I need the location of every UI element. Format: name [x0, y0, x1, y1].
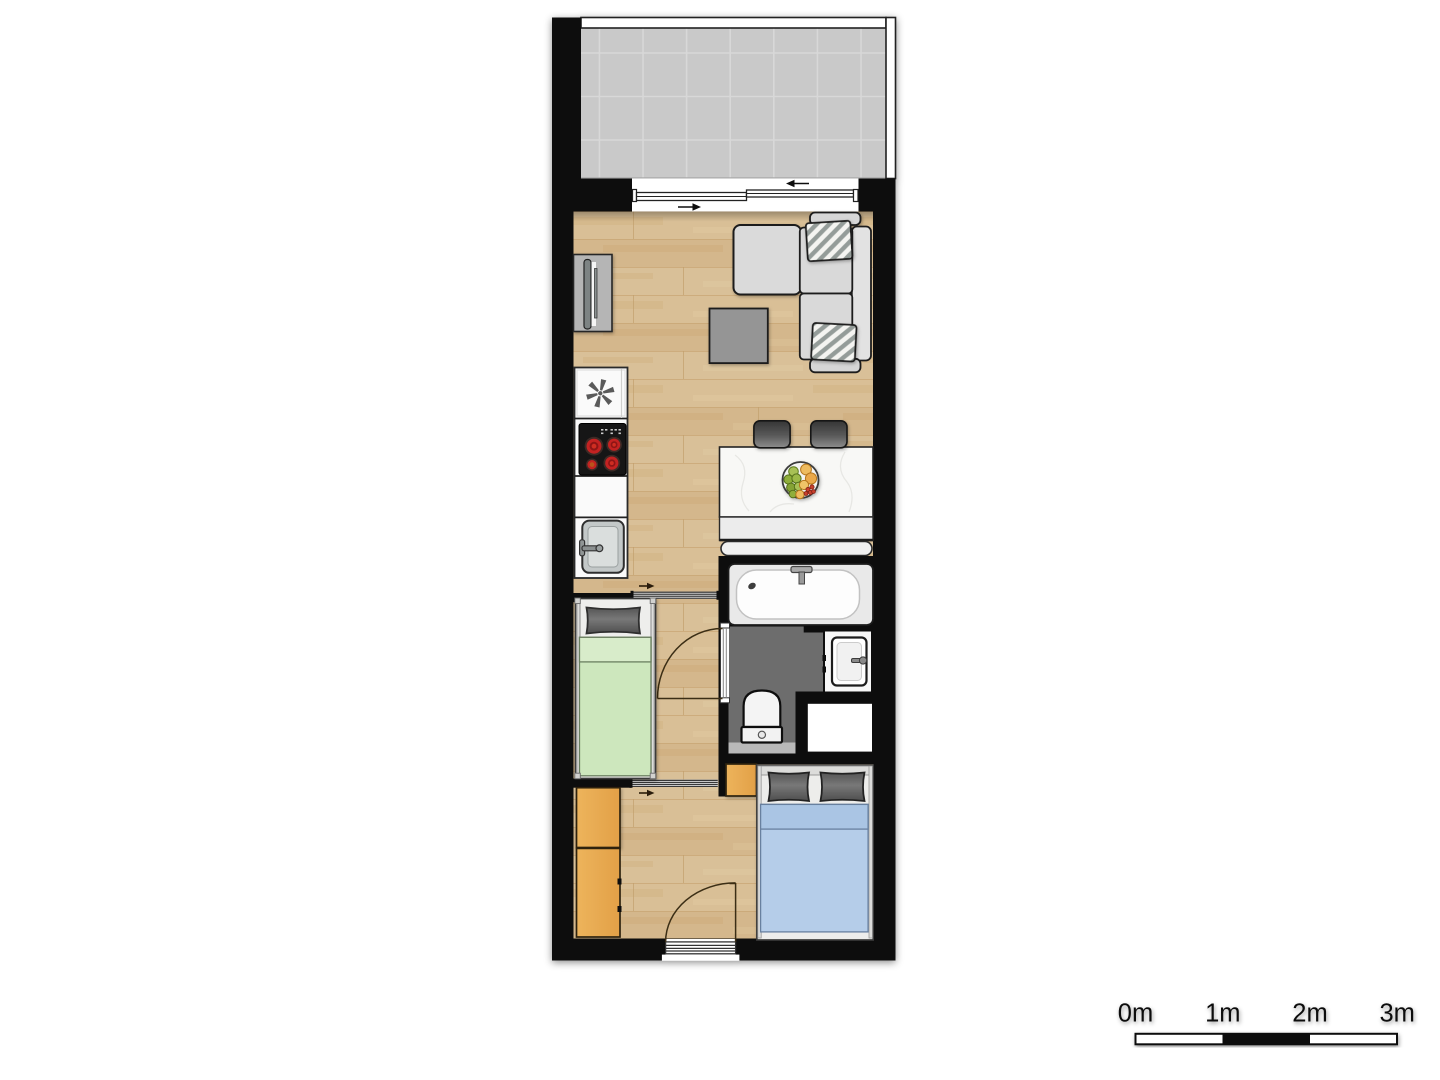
svg-text:1m: 1m [1205, 1000, 1240, 1028]
svg-text:3m: 3m [1379, 1000, 1414, 1028]
svg-text:0m: 0m [1118, 1000, 1153, 1028]
svg-text:2m: 2m [1292, 1000, 1327, 1028]
